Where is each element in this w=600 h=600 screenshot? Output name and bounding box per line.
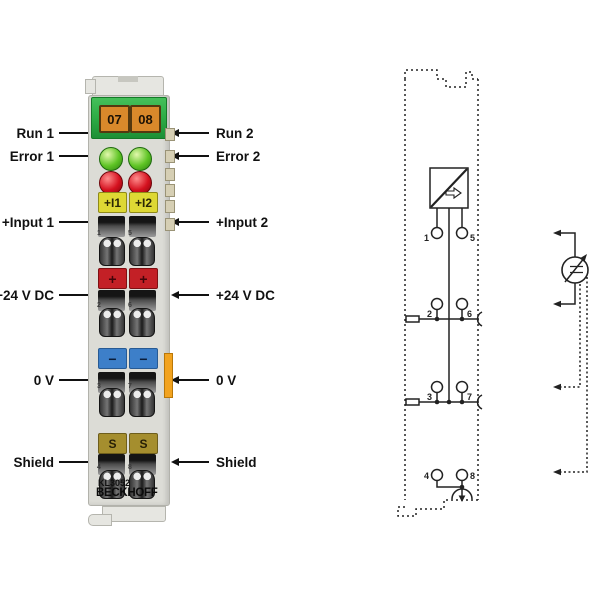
kbus-contact [165, 168, 175, 181]
error-1-label: Error 1 [10, 149, 54, 164]
input-2-label: +Input 2 [216, 215, 268, 230]
input-1-label: +Input 1 [2, 215, 54, 230]
leader-line [179, 379, 209, 381]
0v-right-label: 0 V [216, 373, 236, 388]
callout-error-1: Error 1 [10, 147, 97, 165]
page: Run 1 Error 1 +Input 1 +24 V DC 0 V Shie… [0, 0, 600, 600]
schematic-number-7: 7 [467, 392, 472, 402]
junction-dot [460, 400, 465, 405]
clamp-terminal-6 [129, 308, 155, 337]
wiring-schematic: 1 5 2 6 3 7 4 8 [380, 60, 600, 540]
clamp-number-7: 7 [128, 383, 132, 390]
callout-shield-right: Shield [171, 453, 257, 471]
channel-label-i1: +I1 [98, 192, 127, 213]
callout-run-1: Run 1 [16, 124, 97, 142]
24v-left-label: +24 V DC [0, 288, 54, 303]
shield-key-left: S [98, 433, 127, 454]
run-2-led [128, 147, 152, 171]
arrow-left-icon [553, 469, 561, 476]
module-housing: 07 08 +I1 +I2 1 5 + + 2 6 − − [88, 95, 170, 506]
terminal-circle-5 [457, 228, 468, 239]
leader-line [179, 461, 209, 463]
terminal-circle-4 [432, 470, 443, 481]
kbus-contact [165, 150, 175, 163]
junction-dot [435, 400, 440, 405]
terminal-circle-1 [432, 228, 443, 239]
sensor-lead-bottom [556, 283, 575, 304]
schematic-number-6: 6 [467, 309, 472, 319]
clamp-terminal-3 [99, 388, 125, 417]
schematic-number-2: 2 [427, 309, 432, 319]
terminal-circle-8 [457, 470, 468, 481]
clamp-number-3: 3 [97, 383, 101, 390]
kbus-contact [165, 128, 175, 141]
adc-converter-box [430, 168, 468, 208]
leader-line [59, 221, 89, 223]
junction-dot [460, 317, 465, 322]
shield-ground-icon [452, 487, 472, 502]
arrow-left-icon [171, 458, 179, 466]
0v-left-label: 0 V [34, 373, 54, 388]
run-1-led [99, 147, 123, 171]
24v-right-label: +24 V DC [216, 288, 275, 303]
mounting-hook-top [85, 79, 96, 94]
arrow-left-icon [553, 384, 561, 391]
address-block: 07 08 [91, 97, 167, 139]
current-source-icon [562, 254, 588, 283]
mounting-tab-top [118, 76, 138, 82]
kbus-contact [165, 200, 175, 213]
power-contact-left-0v [406, 399, 419, 405]
terminal-circle-7 [457, 382, 468, 393]
leader-line [59, 132, 89, 134]
schematic-number-5: 5 [470, 233, 475, 243]
callout-input-1: +Input 1 [2, 213, 97, 231]
clamp-number-5: 5 [128, 230, 132, 237]
schematic-number-1: 1 [424, 233, 429, 243]
shield-right-label: Shield [216, 455, 257, 470]
clamp-number-8: 8 [128, 464, 132, 471]
junction-dot [435, 317, 440, 322]
arrow-left-icon [553, 230, 561, 237]
mounting-hook-bottom [88, 514, 112, 526]
plus-label-left: + [98, 268, 127, 289]
clamp-terminal-7 [129, 388, 155, 417]
clamp-number-1: 1 [97, 230, 101, 237]
clamp-number-4: 4 [97, 464, 101, 471]
coding-tab [164, 353, 173, 398]
error-2-label: Error 2 [216, 149, 260, 164]
callout-shield-left: Shield [13, 453, 97, 471]
leader-line [179, 221, 209, 223]
shield-left-label: Shield [13, 455, 54, 470]
minus-label-left: − [98, 348, 127, 369]
leader-line [59, 155, 89, 157]
clamp-terminal-2 [99, 308, 125, 337]
leader-line [179, 155, 209, 157]
schematic-number-8: 8 [470, 471, 475, 481]
shield-key-right: S [129, 433, 158, 454]
plus-label-right: + [129, 268, 158, 289]
power-contact-left-24v [406, 316, 419, 322]
contact-opening [98, 216, 125, 237]
schematic-number-4: 4 [424, 471, 429, 481]
terminal-circle-6 [457, 299, 468, 310]
callout-24v-right: +24 V DC [171, 286, 275, 304]
address-label-08: 08 [130, 105, 161, 133]
minus-label-right: − [129, 348, 158, 369]
arrow-left-icon [171, 291, 179, 299]
terminal-outline-dotted [398, 70, 478, 516]
leader-line [59, 379, 89, 381]
leader-line [179, 132, 209, 134]
arrow-left-icon [553, 301, 561, 308]
clamp-terminal-5 [129, 237, 155, 266]
callout-error-2: Error 2 [171, 147, 260, 165]
rail-continuation-icon [478, 395, 483, 409]
schematic-number-3: 3 [427, 392, 432, 402]
kl3052-terminal-module: 07 08 +I1 +I2 1 5 + + 2 6 − − [88, 76, 168, 526]
kbus-contact [165, 218, 175, 231]
kbus-contact [165, 184, 175, 197]
clamp-number-6: 6 [128, 302, 132, 309]
terminal-circle-2 [432, 299, 443, 310]
address-label-07: 07 [99, 105, 130, 133]
sensor-lead-top [556, 233, 575, 257]
run-1-label: Run 1 [16, 126, 54, 141]
leader-line [179, 294, 209, 296]
leader-line [59, 294, 89, 296]
brand-logo: BECKHOFF [96, 487, 158, 499]
callout-0v-right: 0 V [171, 371, 236, 389]
callout-24v-left: +24 V DC [0, 286, 97, 304]
clamp-terminal-1 [99, 237, 125, 266]
terminal-circle-3 [432, 382, 443, 393]
callout-input-2: +Input 2 [171, 213, 268, 231]
clamp-number-2: 2 [97, 302, 101, 309]
leader-line [59, 461, 89, 463]
channel-label-i2: +I2 [129, 192, 158, 213]
contact-opening [129, 216, 156, 237]
junction-dot [447, 400, 452, 405]
callout-run-2: Run 2 [171, 124, 254, 142]
run-2-label: Run 2 [216, 126, 254, 141]
